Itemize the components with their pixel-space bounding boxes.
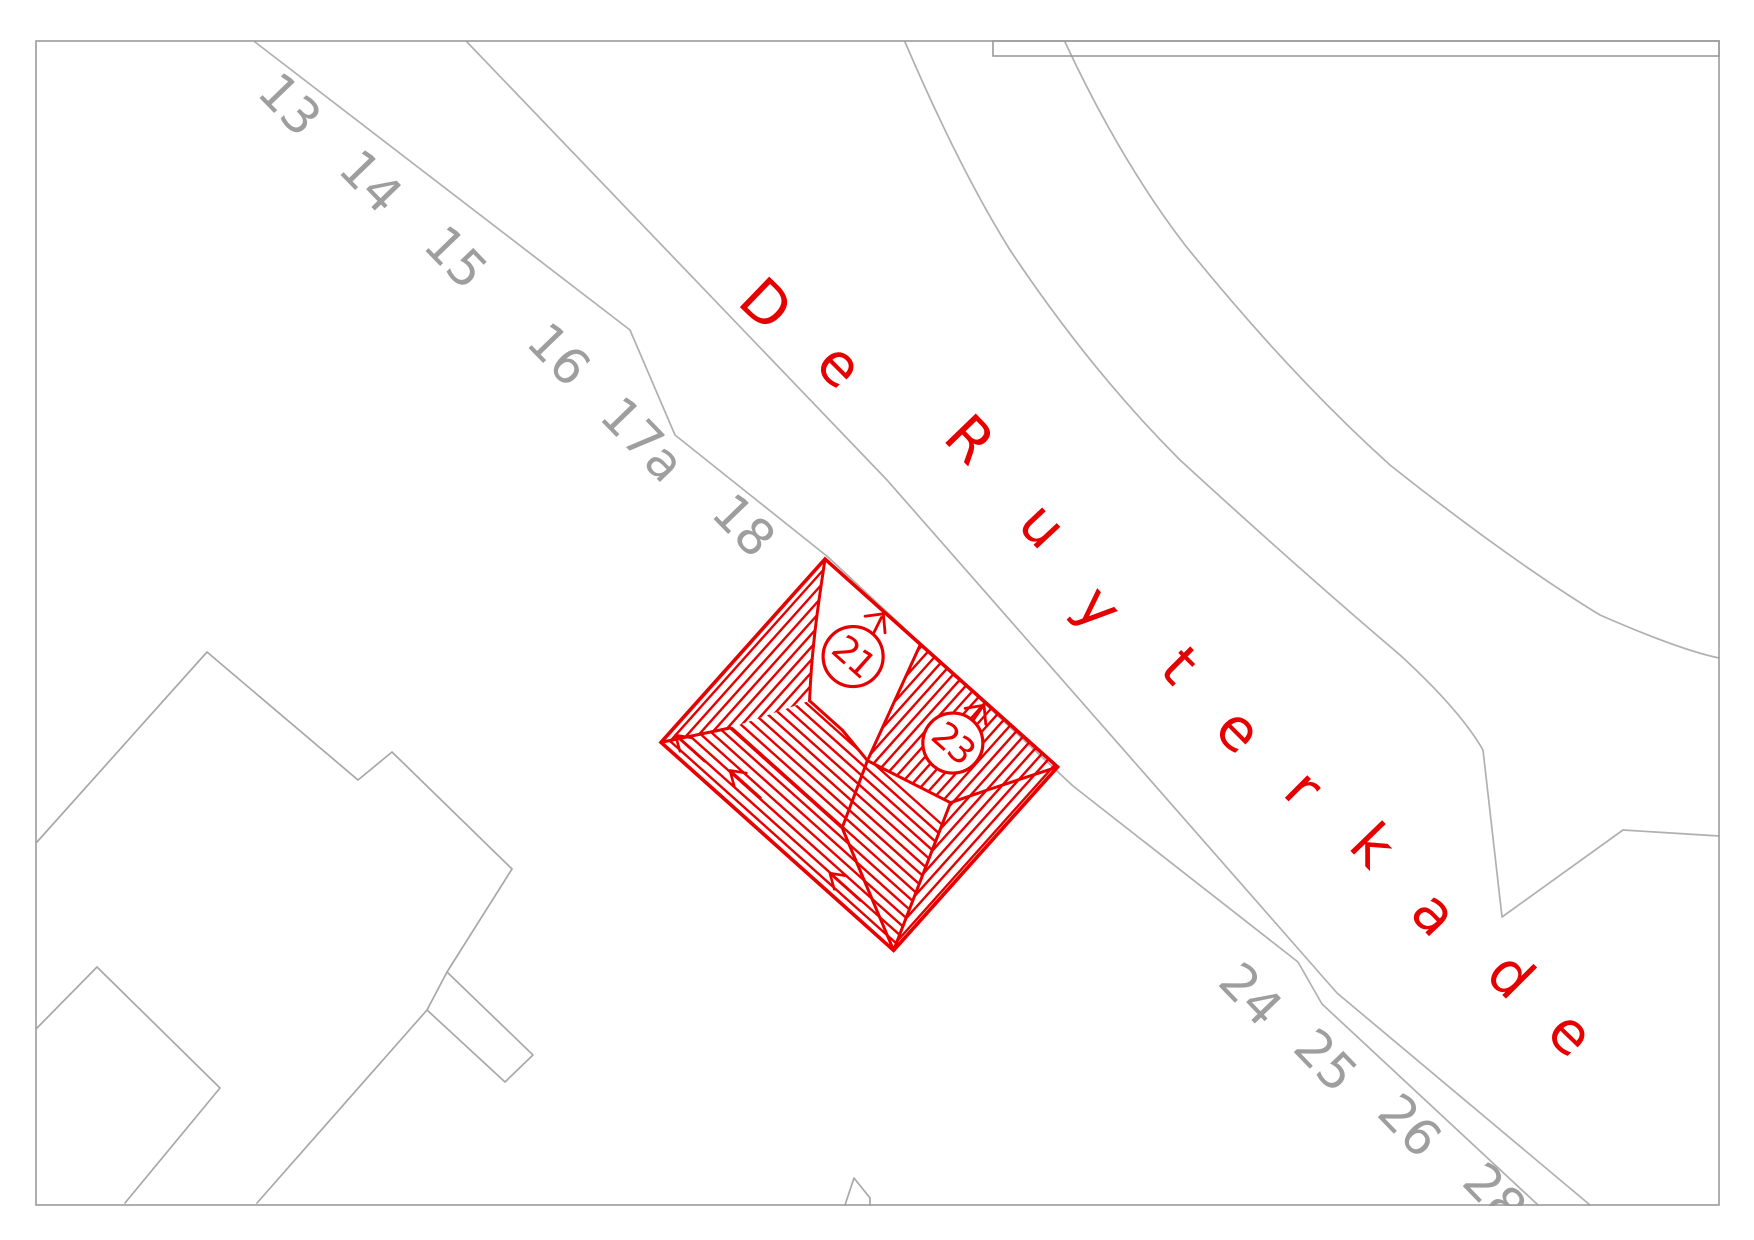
street-name-letter-3: u bbox=[1005, 489, 1080, 562]
house-number-17a: 17a bbox=[589, 386, 696, 494]
gray-building-edge bbox=[257, 1010, 427, 1203]
street-edge-northeast bbox=[467, 42, 1590, 1205]
page-margins bbox=[0, 0, 1754, 1240]
gray-shape-bottom-center bbox=[845, 1178, 870, 1205]
street-parcel-lines bbox=[255, 42, 1719, 1205]
gray-building-wing bbox=[427, 972, 533, 1082]
house-number-15: 15 bbox=[413, 215, 499, 301]
house-number-26: 26 bbox=[1367, 1083, 1453, 1169]
street-name-letter-8: k bbox=[1337, 810, 1410, 882]
street-name-letter-11: e bbox=[1534, 996, 1607, 1070]
house-number-18: 18 bbox=[701, 483, 787, 569]
house-number-16: 16 bbox=[516, 312, 602, 398]
street-name-letter-1: e bbox=[803, 329, 876, 402]
house-number-14: 14 bbox=[328, 139, 414, 225]
hatch-line bbox=[662, 559, 833, 750]
street-name-letter-0: D bbox=[726, 264, 805, 344]
map-canvas: 1314151617a1824252628 DeRuyterkade bbox=[0, 0, 1754, 1240]
house-number-25: 25 bbox=[1283, 1018, 1369, 1104]
gray-building-small bbox=[37, 967, 220, 1203]
house-number-13: 13 bbox=[247, 62, 333, 148]
hatch-line bbox=[673, 721, 912, 935]
adjacent-buildings bbox=[37, 652, 870, 1205]
gray-building-large bbox=[37, 652, 512, 972]
hatch-line bbox=[724, 664, 963, 878]
roof-structure-lines bbox=[661, 559, 1058, 950]
house-number-labels: 1314151617a1824252628 bbox=[247, 62, 1538, 1238]
hatch-line bbox=[679, 715, 918, 929]
street-name-letter-10: d bbox=[1474, 938, 1548, 1012]
street-name-letter-2: R bbox=[931, 401, 1008, 477]
hatch-line bbox=[690, 702, 929, 916]
street-name-letter-5: t bbox=[1148, 633, 1212, 697]
street-name-letter-7: r bbox=[1271, 756, 1336, 821]
house-number-24: 24 bbox=[1208, 952, 1294, 1038]
street-name-letter-9: a bbox=[1398, 877, 1472, 950]
hatch-line bbox=[719, 670, 958, 884]
street-name-letter-6: e bbox=[1202, 694, 1275, 767]
street-name-letter-4: y bbox=[1062, 572, 1136, 643]
hatch-line bbox=[685, 708, 924, 922]
building-outline bbox=[661, 559, 1058, 950]
road-curve-east bbox=[1065, 42, 1719, 658]
hatch-line bbox=[702, 689, 941, 903]
border-double-band bbox=[993, 41, 1719, 56]
kadaster-map-page: 1314151617a1824252628 DeRuyterkade bbox=[0, 0, 1754, 1240]
